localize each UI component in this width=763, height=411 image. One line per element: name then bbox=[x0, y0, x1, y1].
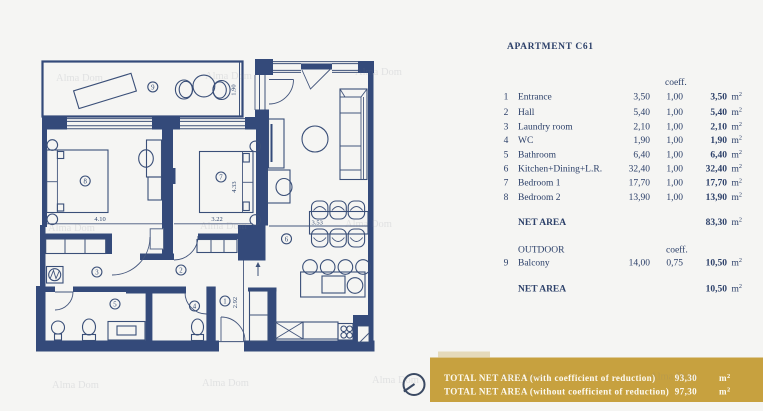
svg-text:WC: WC bbox=[518, 136, 533, 146]
svg-text:OUTDOOR: OUTDOOR bbox=[518, 245, 565, 255]
svg-text:1,00: 1,00 bbox=[666, 136, 683, 146]
svg-text:Bathroom: Bathroom bbox=[518, 150, 557, 160]
svg-text:7: 7 bbox=[504, 179, 509, 189]
svg-text:3,50: 3,50 bbox=[633, 93, 650, 103]
svg-text:APARTMENT C61: APARTMENT C61 bbox=[507, 42, 594, 52]
svg-text:2: 2 bbox=[504, 108, 509, 118]
svg-text:Bedroom 1: Bedroom 1 bbox=[518, 179, 561, 189]
svg-text:1,00: 1,00 bbox=[666, 150, 683, 160]
svg-text:6: 6 bbox=[285, 236, 289, 243]
svg-text:7: 7 bbox=[219, 175, 223, 182]
svg-text:Entrance: Entrance bbox=[518, 93, 552, 103]
svg-text:1,00: 1,00 bbox=[666, 193, 683, 203]
svg-text:3: 3 bbox=[504, 123, 509, 133]
svg-text:9: 9 bbox=[151, 85, 155, 92]
svg-text:17,70: 17,70 bbox=[706, 179, 728, 189]
svg-text:Alma Dom: Alma Dom bbox=[205, 71, 252, 82]
svg-text:97,30: 97,30 bbox=[675, 387, 697, 397]
svg-text:2: 2 bbox=[179, 268, 183, 275]
svg-text:Alma Dom: Alma Dom bbox=[345, 219, 392, 230]
svg-text:10,50: 10,50 bbox=[706, 258, 728, 268]
svg-text:3,50: 3,50 bbox=[710, 93, 727, 103]
svg-text:Laundry room: Laundry room bbox=[518, 123, 573, 133]
svg-text:32,40: 32,40 bbox=[706, 165, 728, 175]
svg-text:5: 5 bbox=[504, 150, 509, 160]
svg-text:5,40: 5,40 bbox=[633, 108, 650, 118]
svg-text:13,90: 13,90 bbox=[629, 193, 651, 203]
svg-text:Alma Dom: Alma Dom bbox=[650, 372, 697, 383]
svg-text:13,90: 13,90 bbox=[706, 193, 728, 203]
svg-text:1,00: 1,00 bbox=[666, 108, 683, 118]
svg-text:1,90: 1,90 bbox=[633, 136, 650, 146]
svg-text:83,30: 83,30 bbox=[706, 218, 728, 228]
svg-text:Alma Dom: Alma Dom bbox=[202, 378, 249, 389]
svg-text:5: 5 bbox=[113, 302, 117, 309]
svg-text:coeff.: coeff. bbox=[665, 77, 687, 88]
svg-text:1: 1 bbox=[504, 93, 509, 103]
svg-text:Hall: Hall bbox=[518, 108, 535, 118]
svg-text:1,00: 1,00 bbox=[666, 123, 683, 133]
svg-text:TOTAL NET AREA (with coefficie: TOTAL NET AREA (with coefficient of redu… bbox=[444, 373, 655, 383]
svg-text:1,00: 1,00 bbox=[666, 165, 683, 175]
svg-text:coeff.: coeff. bbox=[666, 244, 688, 255]
svg-text:4: 4 bbox=[504, 136, 509, 146]
svg-text:Alma Dom: Alma Dom bbox=[52, 380, 99, 391]
svg-text:Alma Dom: Alma Dom bbox=[56, 73, 103, 84]
svg-text:3.53: 3.53 bbox=[312, 220, 323, 227]
svg-text:Alma Dom: Alma Dom bbox=[200, 221, 247, 232]
svg-text:1,90: 1,90 bbox=[710, 136, 727, 146]
svg-text:4.33: 4.33 bbox=[231, 181, 238, 192]
svg-text:NET AREA: NET AREA bbox=[518, 285, 566, 295]
svg-text:1,00: 1,00 bbox=[666, 93, 683, 103]
svg-text:9: 9 bbox=[504, 258, 509, 268]
svg-text:2.92: 2.92 bbox=[232, 297, 239, 308]
svg-text:6: 6 bbox=[504, 165, 509, 175]
svg-text:Bedroom 2: Bedroom 2 bbox=[518, 193, 561, 203]
svg-text:17,70: 17,70 bbox=[629, 179, 651, 189]
svg-text:3: 3 bbox=[95, 270, 99, 277]
svg-text:Alma Dom: Alma Dom bbox=[48, 223, 95, 234]
svg-text:Alma Dom: Alma Dom bbox=[355, 67, 402, 78]
svg-text:10,50: 10,50 bbox=[706, 285, 728, 295]
svg-text:1,00: 1,00 bbox=[666, 179, 683, 189]
svg-text:Kitchen+Dining+L.R.: Kitchen+Dining+L.R. bbox=[518, 165, 602, 175]
svg-text:6,40: 6,40 bbox=[633, 150, 650, 160]
svg-text:4: 4 bbox=[193, 304, 197, 311]
svg-text:0,75: 0,75 bbox=[666, 258, 683, 268]
svg-text:1.90: 1.90 bbox=[231, 84, 238, 95]
svg-text:8: 8 bbox=[83, 179, 87, 186]
svg-text:Alma Dom: Alma Dom bbox=[500, 372, 547, 383]
svg-text:5,40: 5,40 bbox=[710, 108, 727, 118]
svg-text:8: 8 bbox=[504, 193, 509, 203]
svg-text:NET AREA: NET AREA bbox=[518, 218, 566, 228]
svg-text:1: 1 bbox=[223, 299, 226, 306]
svg-text:6,40: 6,40 bbox=[710, 150, 727, 160]
svg-text:Alma Dom: Alma Dom bbox=[372, 375, 419, 386]
svg-text:32,40: 32,40 bbox=[629, 165, 651, 175]
svg-text:TOTAL NET AREA (without coeffi: TOTAL NET AREA (without coefficient of r… bbox=[444, 387, 669, 397]
svg-text:14,00: 14,00 bbox=[629, 258, 651, 268]
svg-text:2,10: 2,10 bbox=[710, 123, 727, 133]
svg-text:4.10: 4.10 bbox=[94, 216, 105, 223]
svg-text:Balcony: Balcony bbox=[518, 258, 550, 268]
svg-text:2,10: 2,10 bbox=[633, 123, 650, 133]
